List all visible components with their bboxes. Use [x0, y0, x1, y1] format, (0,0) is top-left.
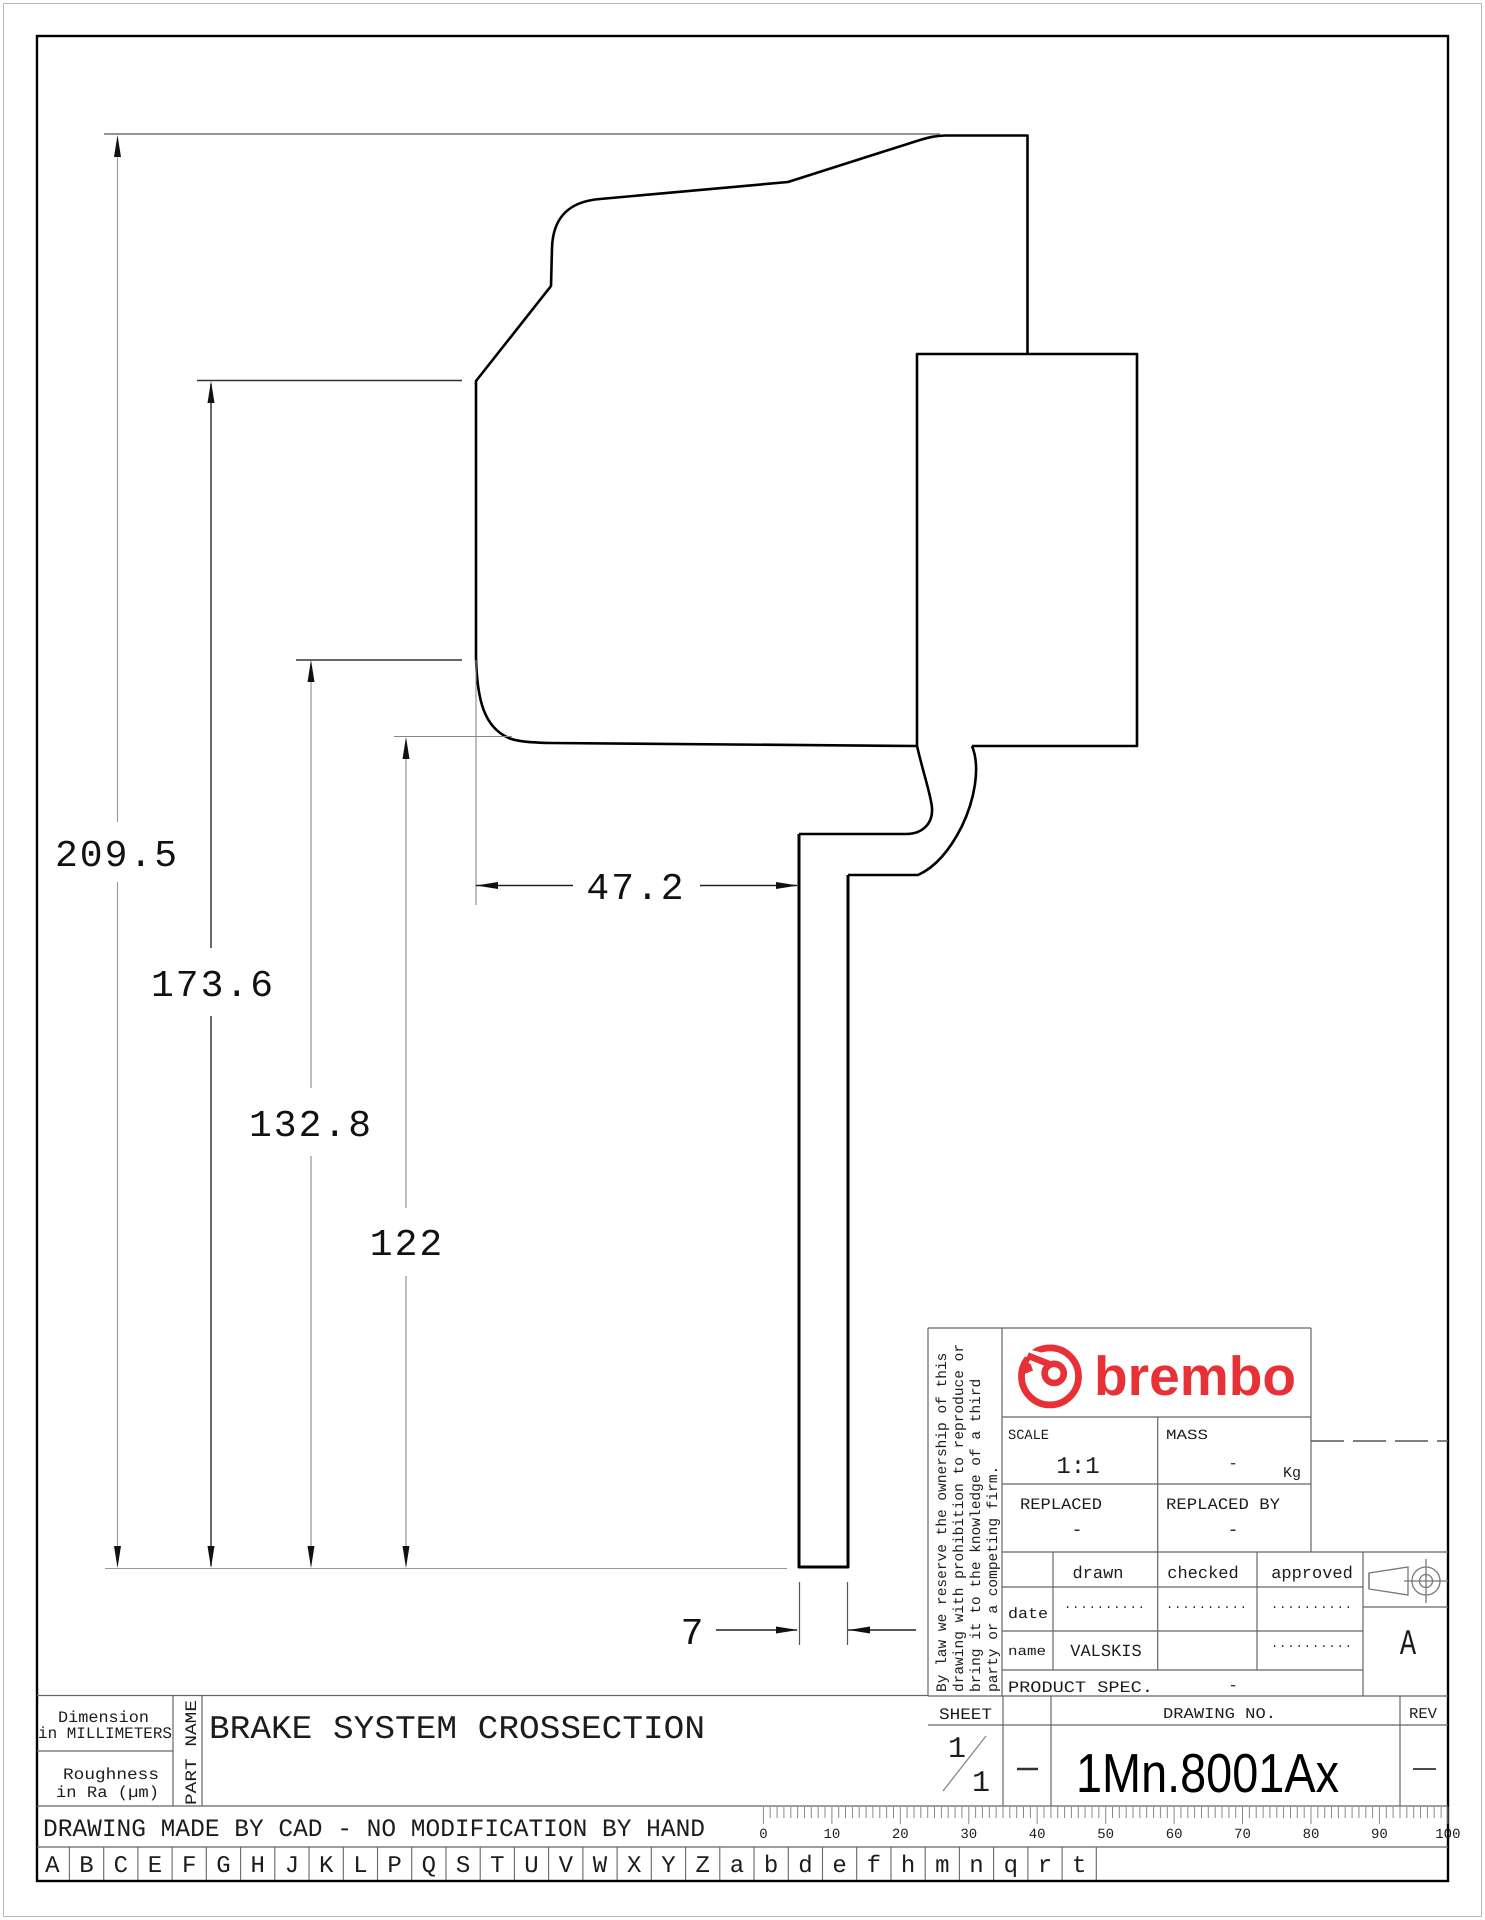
- svg-text:in MILLIMETERS: in MILLIMETERS: [38, 1725, 172, 1743]
- svg-text:X: X: [627, 1853, 641, 1880]
- svg-text:bring it to the knowledge of a: bring it to the knowledge of a third: [969, 1379, 985, 1692]
- svg-text:-: -: [1228, 1455, 1238, 1473]
- svg-text:T: T: [490, 1853, 504, 1880]
- svg-text:Roughness: Roughness: [63, 1766, 159, 1784]
- svg-text:r: r: [1038, 1853, 1052, 1880]
- svg-text:brembo: brembo: [1094, 1345, 1296, 1407]
- svg-text:PRODUCT SPEC.: PRODUCT SPEC.: [1008, 1679, 1153, 1697]
- svg-text:-: -: [1228, 1521, 1239, 1541]
- svg-text:1Mn.8001Ax: 1Mn.8001Ax: [1076, 1742, 1339, 1804]
- svg-text:122: 122: [370, 1224, 444, 1267]
- svg-text:40: 40: [1029, 1827, 1046, 1843]
- svg-text:U: U: [524, 1853, 538, 1880]
- svg-text:70: 70: [1234, 1827, 1251, 1843]
- svg-text:10: 10: [823, 1827, 840, 1843]
- svg-text:60: 60: [1166, 1827, 1183, 1843]
- svg-text:f: f: [867, 1853, 881, 1880]
- svg-text:20: 20: [892, 1827, 909, 1843]
- svg-text:PART NAME: PART NAME: [183, 1700, 201, 1805]
- svg-text:m: m: [935, 1853, 949, 1880]
- svg-text:-: -: [1072, 1521, 1083, 1541]
- svg-text:G: G: [216, 1853, 230, 1880]
- svg-text:Y: Y: [661, 1853, 675, 1880]
- svg-text:name: name: [1008, 1645, 1046, 1660]
- svg-text:30: 30: [960, 1827, 977, 1843]
- svg-text:209.5: 209.5: [55, 835, 179, 878]
- svg-text:1: 1: [948, 1733, 966, 1767]
- svg-text:DRAWING MADE BY CAD - NO MODIF: DRAWING MADE BY CAD - NO MODIFICATION BY…: [43, 1815, 705, 1844]
- svg-text:..........: ..........: [1271, 1598, 1353, 1612]
- svg-text:1: 1: [972, 1767, 990, 1801]
- svg-text:SHEET: SHEET: [939, 1706, 992, 1724]
- svg-text:REPLACED BY: REPLACED BY: [1166, 1496, 1280, 1514]
- svg-text:0: 0: [759, 1827, 767, 1843]
- svg-text:Q: Q: [422, 1853, 436, 1880]
- svg-text:drawing with prohibition to re: drawing with prohibition to reproduce or: [952, 1344, 968, 1692]
- svg-text:MASS: MASS: [1166, 1428, 1208, 1444]
- svg-text:100: 100: [1435, 1827, 1460, 1843]
- svg-text:e: e: [832, 1853, 846, 1880]
- svg-text:132.8: 132.8: [249, 1105, 373, 1148]
- svg-text:C: C: [114, 1853, 128, 1880]
- svg-text:n: n: [969, 1853, 983, 1880]
- svg-text:F: F: [182, 1853, 196, 1880]
- svg-text:173.6: 173.6: [151, 965, 275, 1008]
- svg-text:J: J: [285, 1853, 299, 1880]
- svg-text:..........: ..........: [1166, 1598, 1248, 1612]
- svg-text:90: 90: [1371, 1827, 1388, 1843]
- svg-text:Z: Z: [695, 1853, 709, 1880]
- svg-text:P: P: [387, 1853, 401, 1880]
- svg-text:q: q: [1004, 1853, 1018, 1880]
- svg-text:DRAWING NO.: DRAWING NO.: [1163, 1706, 1276, 1723]
- svg-text:80: 80: [1303, 1827, 1320, 1843]
- svg-text:drawn: drawn: [1072, 1565, 1123, 1584]
- svg-text:h: h: [901, 1853, 915, 1880]
- svg-text:t: t: [1072, 1853, 1086, 1880]
- svg-text:checked: checked: [1167, 1565, 1238, 1584]
- svg-text:H: H: [250, 1853, 264, 1880]
- svg-text:..........: ..........: [1064, 1598, 1146, 1612]
- svg-text:A: A: [45, 1853, 60, 1880]
- svg-text:-: -: [1228, 1677, 1238, 1695]
- svg-text:approved: approved: [1271, 1565, 1353, 1584]
- svg-text:S: S: [456, 1853, 470, 1880]
- svg-text:date: date: [1008, 1606, 1048, 1623]
- svg-text:a: a: [730, 1853, 744, 1880]
- svg-text:K: K: [319, 1853, 334, 1880]
- svg-text:47.2: 47.2: [586, 868, 685, 911]
- svg-text:W: W: [593, 1853, 608, 1880]
- svg-text:BRAKE SYSTEM CROSSECTION: BRAKE SYSTEM CROSSECTION: [209, 1711, 705, 1748]
- svg-text:E: E: [148, 1853, 162, 1880]
- svg-text:V: V: [559, 1853, 574, 1880]
- svg-text:7: 7: [681, 1613, 706, 1656]
- svg-text:1:1: 1:1: [1056, 1454, 1099, 1481]
- svg-text:Kg: Kg: [1283, 1465, 1301, 1482]
- svg-text:party or a competing firm.: party or a competing firm.: [986, 1466, 1002, 1692]
- svg-text:d: d: [798, 1853, 812, 1880]
- svg-text:50: 50: [1097, 1827, 1114, 1843]
- svg-text:SCALE: SCALE: [1008, 1428, 1049, 1444]
- svg-text:..........: ..........: [1271, 1637, 1353, 1651]
- svg-text:b: b: [764, 1853, 778, 1880]
- svg-text:REV: REV: [1409, 1706, 1437, 1723]
- svg-text:REPLACED: REPLACED: [1020, 1496, 1102, 1514]
- svg-text:L: L: [353, 1853, 367, 1880]
- svg-text:VALSKIS: VALSKIS: [1070, 1643, 1141, 1662]
- svg-text:By law we reserve the ownershi: By law we reserve the ownership of this: [935, 1353, 951, 1692]
- svg-text:A: A: [1400, 1624, 1417, 1665]
- svg-text:B: B: [79, 1853, 93, 1880]
- svg-text:in Ra (µm): in Ra (µm): [56, 1784, 159, 1802]
